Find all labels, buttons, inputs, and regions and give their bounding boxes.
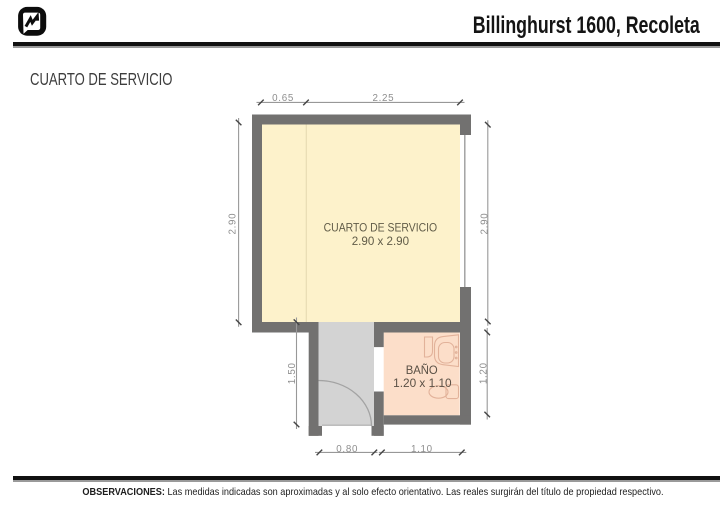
svg-text:1.10: 1.10 bbox=[411, 444, 433, 455]
svg-text:2.25: 2.25 bbox=[372, 93, 394, 104]
svg-text:0.65: 0.65 bbox=[272, 93, 294, 104]
svg-text:BAÑO: BAÑO bbox=[406, 363, 438, 377]
svg-text:0.80: 0.80 bbox=[336, 444, 358, 455]
svg-text:1.20 x 1.10: 1.20 x 1.10 bbox=[393, 376, 452, 390]
svg-text:1.20: 1.20 bbox=[478, 362, 489, 384]
svg-text:1.50: 1.50 bbox=[287, 362, 298, 384]
svg-text:2.90 x 2.90: 2.90 x 2.90 bbox=[352, 235, 409, 248]
svg-text:2.90: 2.90 bbox=[228, 213, 239, 235]
svg-text:CUARTO DE SERVICIO: CUARTO DE SERVICIO bbox=[324, 222, 438, 235]
svg-text:2.90: 2.90 bbox=[479, 213, 490, 235]
